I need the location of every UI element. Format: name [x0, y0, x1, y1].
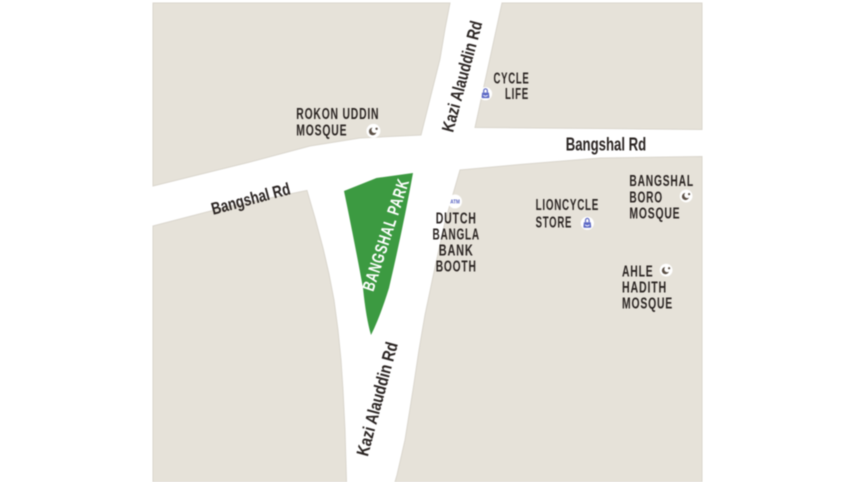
svg-text:BANGSHAL: BANGSHAL: [629, 173, 694, 190]
svg-text:LIFE: LIFE: [505, 86, 529, 103]
svg-text:ROKON UDDIN: ROKON UDDIN: [296, 106, 379, 123]
svg-text:DUTCH: DUTCH: [436, 210, 477, 227]
svg-text:ATM: ATM: [450, 199, 460, 205]
svg-text:MOSQUE: MOSQUE: [629, 206, 680, 223]
svg-text:MOSQUE: MOSQUE: [622, 295, 673, 312]
svg-text:BANK: BANK: [439, 242, 474, 259]
svg-text:HADITH: HADITH: [622, 279, 667, 296]
svg-text:STORE: STORE: [536, 215, 573, 232]
svg-text:LIONCYCLE: LIONCYCLE: [536, 197, 600, 214]
svg-text:BORO: BORO: [629, 189, 663, 206]
svg-text:BANGLA: BANGLA: [432, 227, 480, 244]
svg-text:MOSQUE: MOSQUE: [296, 123, 347, 140]
svg-text:BOOTH: BOOTH: [436, 258, 477, 275]
svg-text:Bangshal Rd: Bangshal Rd: [566, 134, 647, 154]
svg-text:CYCLE: CYCLE: [494, 70, 530, 87]
svg-text:AHLE: AHLE: [622, 263, 654, 280]
